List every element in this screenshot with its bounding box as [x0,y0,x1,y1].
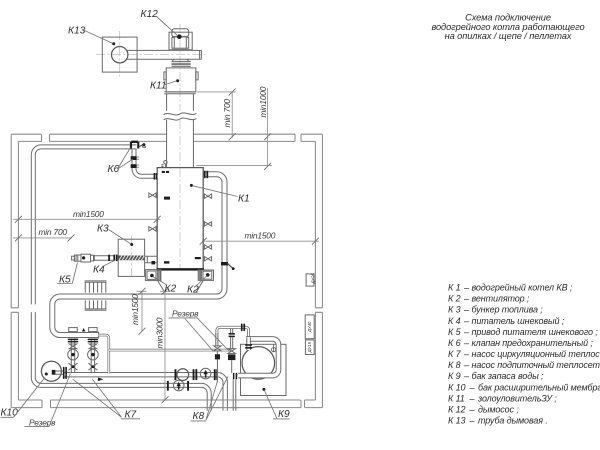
svg-text:К 8: К 8 [448,360,461,370]
svg-text:min1000: min1000 [258,86,268,117]
svg-text:К 2: К 2 [448,294,461,304]
svg-text:ДУ25: ДУ25 [310,273,315,285]
svg-text:бак расширительный мембранный: бак расширительный мембранный [478,382,600,392]
svg-text:насос подпиточный теплосети с: насос подпиточный теплосети с [472,360,600,370]
svg-text:К12: К12 [141,9,159,20]
svg-text:К 6: К 6 [448,338,461,348]
svg-text:К 3: К 3 [448,305,461,315]
svg-text:ДУ40: ДУ40 [307,321,312,333]
svg-text:К3: К3 [97,223,109,234]
svg-text:min1500: min1500 [73,209,104,219]
svg-text:min1500: min1500 [130,294,140,325]
svg-text:К 5: К 5 [448,327,462,337]
svg-text:min1500: min1500 [245,231,276,241]
svg-text:К 7: К 7 [448,349,462,359]
svg-text:К13: К13 [68,26,86,37]
svg-text:насос циркуляционный теплосети: насос циркуляционный теплосети [472,349,600,359]
svg-text:труба дымовая .: труба дымовая . [478,416,548,426]
svg-text:К 4: К 4 [448,316,461,326]
svg-text:клапан предохранительный ;: клапан предохранительный ; [472,338,594,348]
svg-text:привод питателя шнекового ;: привод питателя шнекового ; [472,327,599,337]
svg-text:бак запаса воды ;: бак запаса воды ; [472,371,544,381]
svg-text:К 9: К 9 [448,371,461,381]
svg-text:К9: К9 [278,409,290,420]
svg-text:питатель шнековый ;: питатель шнековый ; [472,316,565,326]
svg-text:К11: К11 [150,81,167,92]
svg-text:К 11: К 11 [448,393,465,403]
svg-text:К8: К8 [193,411,205,422]
svg-text:min 700: min 700 [222,99,232,128]
svg-text:К1: К1 [238,194,250,205]
svg-text:К 13: К 13 [448,416,465,426]
svg-text:К 1: К 1 [448,283,461,293]
svg-text:min3000: min3000 [155,317,165,348]
svg-text:К 12: К 12 [448,404,465,414]
svg-text:водогрейный котел КВ ;: водогрейный котел КВ ; [472,283,573,293]
svg-text:на опилках / щепе / пеллетах: на опилках / щепе / пеллетах [445,31,572,41]
svg-text:вентилятор ;: вентилятор ; [472,294,530,304]
svg-text:min 700: min 700 [39,227,68,237]
svg-text:ДУ15: ДУ15 [307,341,312,353]
svg-text:бункер топлива ;: бункер топлива ; [472,305,544,315]
svg-text:дымосос ;: дымосос ; [478,404,519,414]
svg-text:К2: К2 [165,284,177,295]
svg-text:К10: К10 [1,408,19,419]
svg-text:К2: К2 [187,284,199,295]
svg-text:К 10: К 10 [448,382,465,392]
svg-text:Резерв: Резерв [172,308,199,318]
svg-text:золоуловительЗУ ;: золоуловительЗУ ; [477,393,557,403]
